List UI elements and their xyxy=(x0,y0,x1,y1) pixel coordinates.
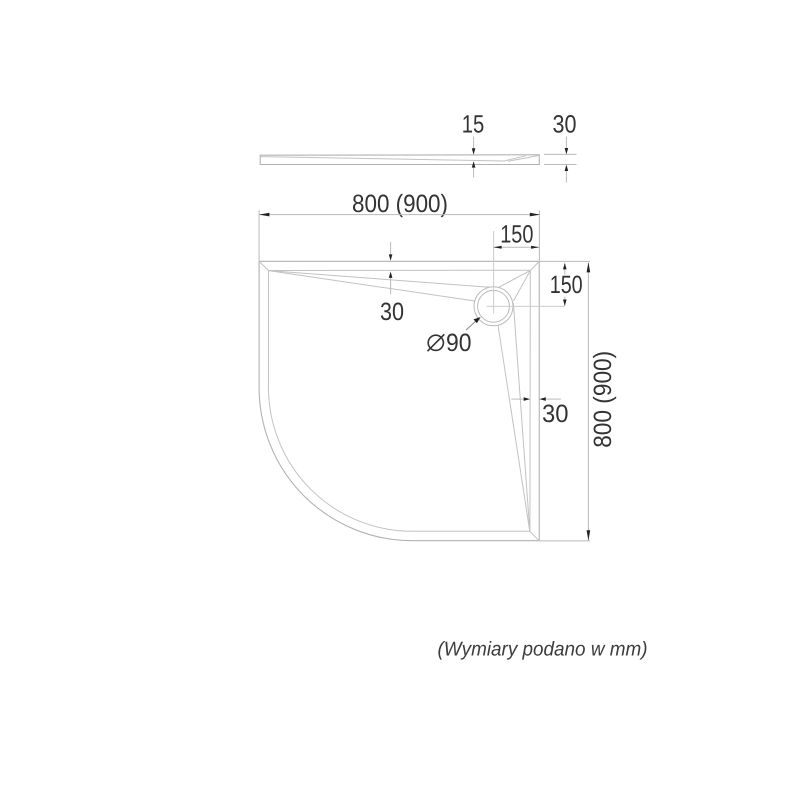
svg-text:150: 150 xyxy=(500,221,533,249)
svg-text:30: 30 xyxy=(553,111,577,139)
svg-text:800 (900): 800 (900) xyxy=(352,190,448,218)
svg-text:800 (900): 800 (900) xyxy=(589,351,617,448)
svg-text:30: 30 xyxy=(380,298,404,326)
svg-text:150: 150 xyxy=(550,271,583,299)
svg-text:30: 30 xyxy=(542,400,569,428)
svg-text:(Wymiary podano w mm): (Wymiary podano w mm) xyxy=(438,639,648,661)
svg-text:90: 90 xyxy=(446,329,472,357)
svg-text:15: 15 xyxy=(462,111,485,139)
